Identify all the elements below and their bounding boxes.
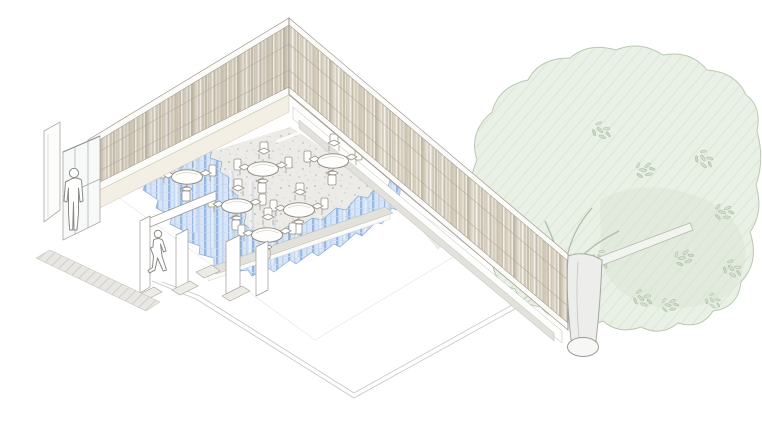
- tree-trunk: [567, 254, 602, 357]
- trunk-base: [568, 338, 599, 357]
- foliage-hatch-overlay: [471, 46, 761, 331]
- tree: [471, 46, 761, 331]
- open-door-leaf: [44, 122, 60, 222]
- pavilion-axonometric: [0, 0, 762, 430]
- axonometric-drawing-canvas: [0, 0, 762, 430]
- person-walking: [148, 230, 167, 273]
